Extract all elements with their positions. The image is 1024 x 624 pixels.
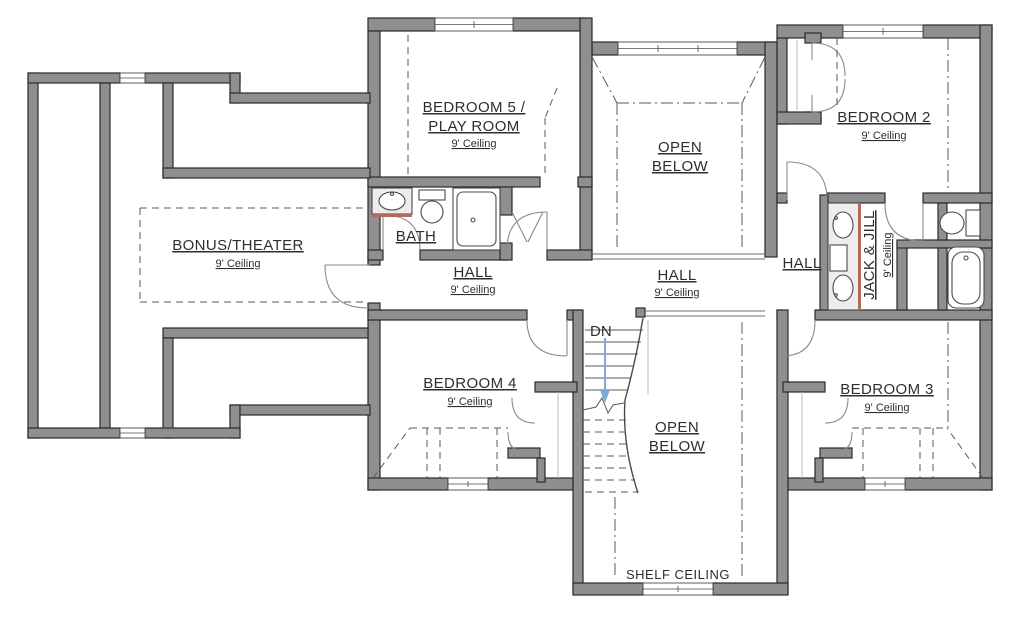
window-wing-bottom: [120, 428, 145, 438]
bedroom4-closet-doors: [508, 398, 535, 450]
floor-plan-page: BEDROOM 5 / PLAY ROOM 9' Ceiling OPEN BE…: [0, 0, 1024, 624]
bedroom4-ceiling-label: 9' Ceiling: [448, 396, 493, 408]
jackjill-label: JACK & JILL: [861, 210, 878, 299]
bedroom5-label-line1: BEDROOM 5 /: [423, 99, 526, 116]
walls-left-wing: [28, 73, 370, 438]
floor-plan-svg: BEDROOM 5 / PLAY ROOM 9' Ceiling OPEN BE…: [0, 0, 1024, 624]
bedroom5-door: [507, 212, 547, 250]
bedroom3-ceiling-label: 9' Ceiling: [865, 402, 910, 414]
bedroom2-ceiling-label: 9' Ceiling: [862, 130, 907, 142]
open-below-top-line2: BELOW: [652, 158, 709, 175]
open-below-bottom-line2: BELOW: [649, 438, 706, 455]
bath-sink: [372, 188, 412, 217]
linen-bifold-doors: [512, 212, 543, 242]
bonus-label: BONUS/THEATER: [172, 237, 304, 254]
window-bedroom2-top: [843, 25, 923, 38]
hall-mid-ceiling-label: 9' Ceiling: [655, 287, 700, 299]
bedroom4-label: BEDROOM 4: [423, 375, 517, 392]
bath-label: BATH: [396, 228, 437, 245]
window-extension-bottom: [643, 583, 713, 595]
hall-left-ceiling-label: 9' Ceiling: [451, 284, 496, 296]
bedroom4-door: [527, 320, 567, 356]
bedroom5-ceiling-label: 9' Ceiling: [452, 138, 497, 150]
window-open-top: [618, 42, 737, 55]
jackjill-ceiling-label: 9' Ceiling: [882, 233, 894, 278]
open-below-bottom-line1: OPEN: [655, 419, 699, 436]
bedroom3-label: BEDROOM 3: [840, 381, 934, 398]
open-below-top-line1: OPEN: [658, 139, 702, 156]
window-bedroom4-bottom: [448, 478, 488, 490]
jackjill-toilet: [940, 210, 980, 236]
bedroom5-label-line2: PLAY ROOM: [428, 118, 519, 135]
bath-toilet: [419, 190, 445, 223]
jackjill-vanity: [828, 203, 861, 310]
stairs-dn-label: DN: [590, 323, 612, 340]
bedroom2-door: [787, 162, 827, 200]
jackjill-tub: [948, 247, 984, 308]
bath-shower: [453, 188, 500, 250]
bedroom2-label: BEDROOM 2: [837, 109, 931, 126]
down-arrow: [600, 338, 610, 403]
window-bedroom5-top: [435, 18, 513, 31]
hall-mid-label: HALL: [657, 267, 696, 284]
bonus-ceiling-label: 9' Ceiling: [216, 258, 261, 270]
shelf-ceiling-label: SHELF CEILING: [626, 567, 730, 582]
railings: [592, 254, 765, 316]
bedroom2-closet-doors: [812, 43, 845, 112]
window-wing-top: [120, 73, 145, 83]
hall-right-label: HALL: [782, 255, 821, 272]
hall-left-label: HALL: [453, 264, 492, 281]
stairs: [583, 318, 648, 493]
bedroom3-closet-doors: [825, 398, 852, 450]
window-bedroom3-bottom: [865, 478, 905, 490]
